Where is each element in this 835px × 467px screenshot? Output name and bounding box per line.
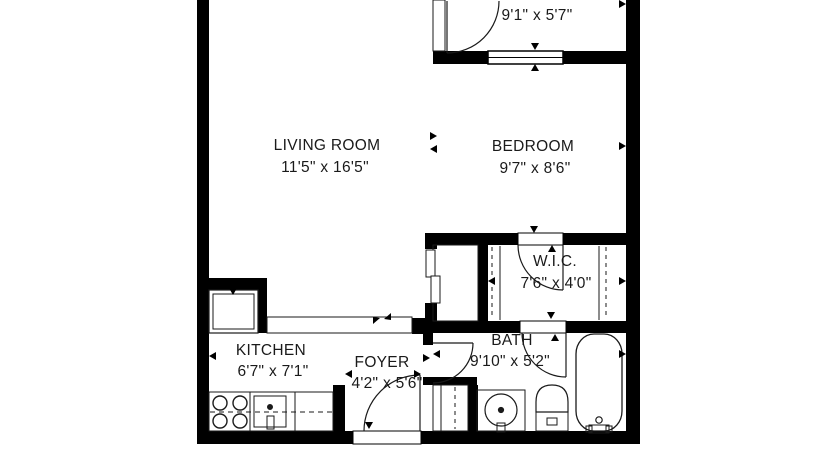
- bathtub-icon: [576, 334, 622, 433]
- floor-plan: LIVING ROOM 11'5" x 16'5" BEDROOM 9'7" x…: [0, 0, 835, 467]
- arrow-left-icon: [209, 352, 216, 360]
- base-counter-outline: [209, 392, 333, 431]
- wall-foyer-bath-upper: [423, 333, 433, 345]
- base-counter: [209, 392, 333, 431]
- room-label-kitchen: KITCHEN 6'7" x 7'1": [236, 342, 309, 380]
- wic-name: W.I.C.: [533, 253, 577, 270]
- arrow-left-icon: [430, 145, 437, 153]
- wall-wic-top-b: [563, 233, 626, 245]
- room-label-upper-room: 9'1" x 5'7": [501, 7, 572, 24]
- burner: [233, 396, 247, 410]
- toilet-bowl: [536, 385, 568, 412]
- wall-foyer-closet-top: [423, 377, 477, 385]
- bedroom-dims: 9'7" x 8'6": [499, 160, 570, 177]
- refrigerator-icon: [209, 290, 258, 333]
- upper-room-door-arc: [447, 1, 499, 53]
- room-label-bath: BATH 9'10" x 5'2": [470, 332, 550, 370]
- arrow-right-icon: [619, 142, 626, 150]
- arrow-right-icon: [430, 132, 437, 140]
- upper-room-door-frame: [433, 0, 445, 51]
- wall-bottom-left: [197, 431, 353, 444]
- entry-closet-slider-panel-2: [431, 276, 440, 303]
- wall-bath-top-b: [566, 321, 626, 333]
- refrigerator-outer: [209, 290, 258, 333]
- room-label-living-room: LIVING ROOM 11'5" x 16'5": [274, 137, 381, 176]
- wall-upperroom-bottom-a: [433, 51, 488, 64]
- vanity-sink-icon: [477, 390, 525, 432]
- foyer-closet: [433, 385, 468, 431]
- arrow-up-icon: [531, 64, 539, 71]
- burner: [213, 414, 227, 428]
- wic-door-threshold: [518, 233, 563, 245]
- room-label-bedroom: BEDROOM 9'7" x 8'6": [492, 138, 574, 177]
- arrow-up-icon: [551, 334, 559, 341]
- vanity-drain: [499, 408, 504, 413]
- kitchen-dims: 6'7" x 7'1": [237, 363, 308, 380]
- bedroom-name: BEDROOM: [492, 138, 574, 155]
- wall-kitchen-foyer-stub: [333, 385, 345, 431]
- floor-plan-canvas: LIVING ROOM 11'5" x 16'5" BEDROOM 9'7" x…: [0, 0, 835, 467]
- toilet-flush: [547, 418, 557, 425]
- bath-name: BATH: [491, 332, 532, 349]
- arrow-sw-icon: [373, 317, 380, 324]
- arrow-down-icon: [531, 43, 539, 50]
- refrigerator-inner: [213, 294, 254, 329]
- upper-room-door: [433, 0, 499, 53]
- toilet-icon: [536, 385, 568, 431]
- entry-closet-slider-panel-1: [426, 250, 435, 277]
- room-label-wic: W.I.C. 7'6" x 4'0": [520, 253, 591, 292]
- entry-threshold: [353, 431, 421, 444]
- arrow-right-icon: [619, 277, 626, 285]
- wall-right: [626, 0, 640, 444]
- arrow-right-icon: [619, 0, 626, 8]
- burner: [233, 414, 247, 428]
- arrow-left-icon: [488, 277, 495, 285]
- wall-counter-cap: [412, 318, 429, 334]
- wall-closet-stub-top: [425, 233, 437, 249]
- arrow-up-icon: [548, 245, 556, 252]
- foyer-dims: 4'2" x 5'6": [351, 375, 422, 392]
- wic-dims: 7'6" x 4'0": [520, 275, 591, 292]
- foyer-closet-outline: [433, 385, 468, 431]
- arrow-right-icon: [423, 354, 430, 362]
- burner: [213, 396, 227, 410]
- living-room-name: LIVING ROOM: [274, 137, 381, 154]
- toilet-tank: [536, 412, 568, 431]
- arrow-down-icon: [547, 312, 555, 319]
- kitchen-sink-drain: [268, 405, 273, 410]
- wall-left: [197, 0, 209, 444]
- living-room-dims: 11'5" x 16'5": [281, 159, 369, 176]
- wall-wic-top-a: [433, 233, 518, 245]
- arrow-left-icon: [433, 350, 440, 358]
- bath-dims: 9'10" x 5'2": [470, 353, 550, 370]
- arrow-down-icon: [530, 226, 538, 233]
- foyer-name: FOYER: [355, 354, 410, 371]
- wall-wic-inner: [478, 233, 488, 321]
- arrow-down-icon: [365, 422, 373, 429]
- wall-upperroom-bottom-b: [563, 51, 626, 64]
- room-label-foyer: FOYER 4'2" x 5'6": [351, 354, 422, 392]
- wall-fridge-stub: [258, 278, 267, 333]
- kitchen-name: KITCHEN: [236, 342, 306, 359]
- upper-room-dims: 9'1" x 5'7": [501, 7, 572, 24]
- bathtub-drain: [596, 417, 602, 423]
